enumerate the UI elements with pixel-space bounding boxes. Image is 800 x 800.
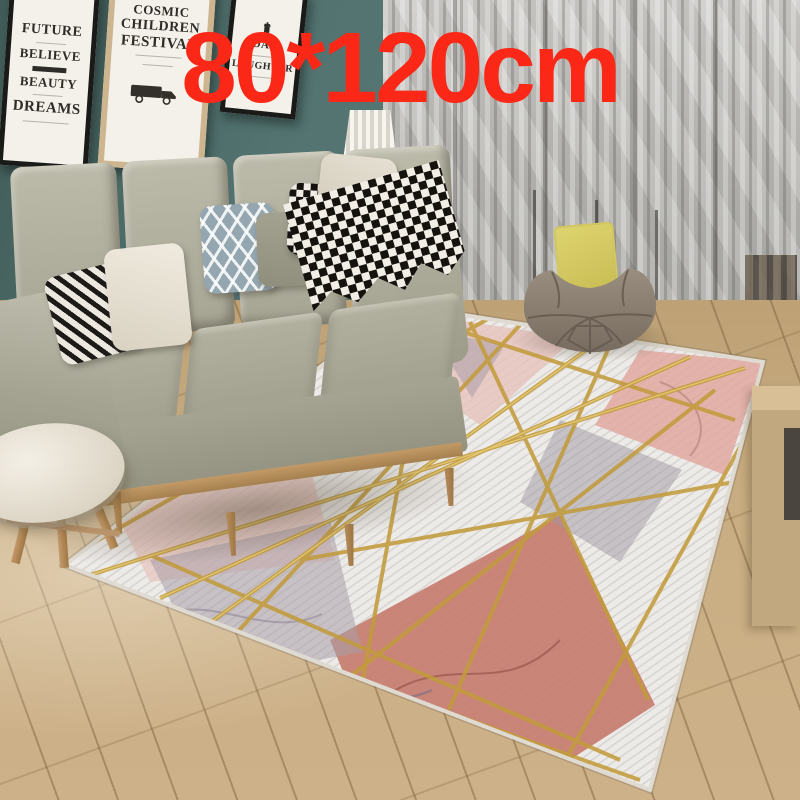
cabinet-dark-slot	[784, 428, 800, 520]
size-overlay-text: 80*120cm	[120, 16, 680, 121]
marble-vein	[300, 710, 452, 742]
soccer-beanbag	[518, 240, 662, 358]
white-pillow	[103, 242, 193, 352]
living-room-product-photo: FUTURE BELIEVE BEAUTY DREAMS COSMIC CHIL…	[0, 0, 800, 800]
